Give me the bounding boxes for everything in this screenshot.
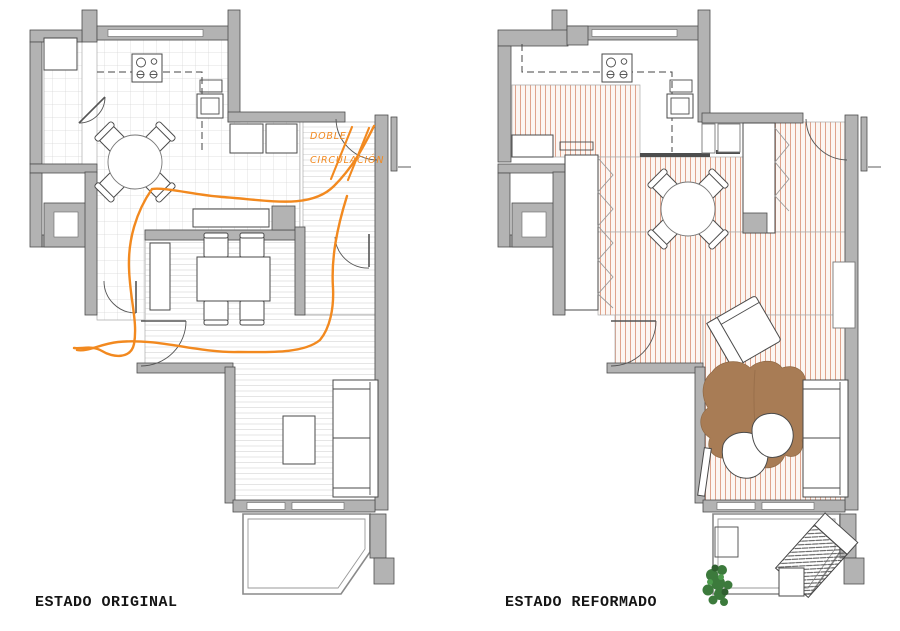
coffee-table	[283, 416, 315, 464]
floor-plan-comparison: DOBLE CIRCULACIÓN ESTADO ORIGINAL	[0, 0, 900, 631]
plan-original: DOBLE CIRCULACIÓN ESTADO ORIGINAL	[30, 10, 411, 611]
dining-table	[197, 257, 270, 301]
balcony-floor	[243, 514, 370, 594]
entry-cabinet	[718, 124, 740, 152]
stove-icon	[132, 54, 162, 82]
entry-closet	[266, 124, 297, 153]
plan-reformed-title: ESTADO REFORMADO	[505, 594, 657, 611]
floor-plans-canvas: DOBLE CIRCULACIÓN ESTADO ORIGINAL	[0, 0, 900, 631]
entry-hall-floor	[303, 122, 375, 315]
radiator-icon	[670, 80, 692, 92]
entry-closet	[230, 124, 263, 153]
radiator-cabinet	[833, 262, 855, 328]
kitchen-counter	[512, 135, 553, 157]
living-left-floor	[615, 315, 703, 367]
sofa	[333, 380, 378, 497]
stove-icon	[602, 54, 632, 82]
plan-original-title: ESTADO ORIGINAL	[35, 594, 178, 611]
kitchen-peninsula	[640, 153, 710, 157]
circulation-label-line2: CIRCULACIÓN	[310, 154, 384, 166]
sideboard	[193, 209, 269, 227]
entry-wood-floor	[775, 122, 845, 232]
entry-cabinet	[702, 124, 715, 153]
circulation-label-line1: DOBLE	[310, 131, 347, 142]
cabinet	[150, 243, 170, 310]
living-upper-floor	[598, 232, 845, 315]
plan-reformed: ESTADO REFORMADO	[498, 10, 881, 611]
sofa	[803, 380, 848, 497]
closet-base	[743, 213, 767, 233]
floors-reformed	[512, 85, 845, 594]
wardrobe-left	[565, 155, 598, 310]
washer-appliance	[44, 38, 77, 70]
side-table	[779, 568, 804, 596]
